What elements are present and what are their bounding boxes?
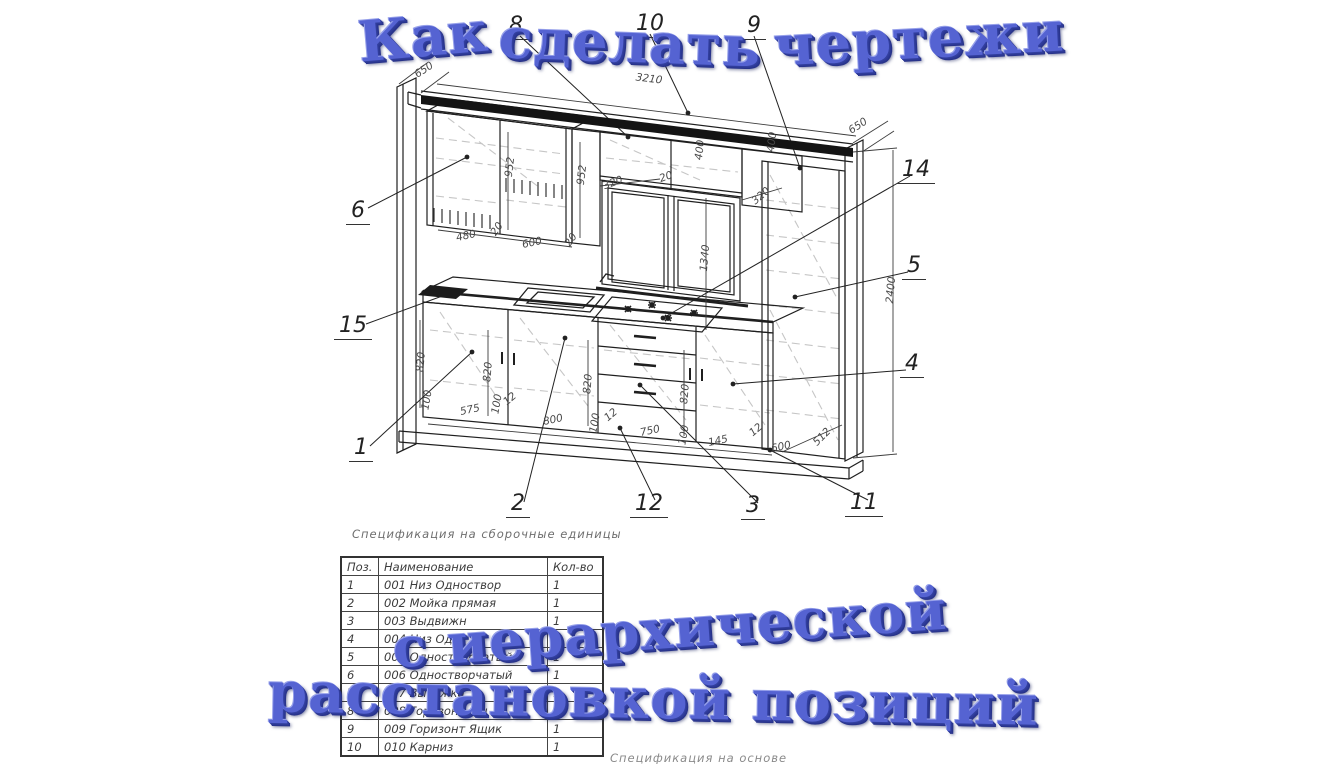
footer-caption: Спецификация на основе	[610, 751, 787, 764]
table-cell: 1	[341, 576, 379, 594]
table-header-row: Поз. Наименование Кол-во	[341, 557, 603, 576]
table-cell: 3	[341, 612, 379, 630]
table-cell: 001 Низ Одноствор	[379, 576, 548, 594]
right-wall-panel	[845, 140, 863, 461]
page-background: 6503210650952952400400320203204802060020…	[0, 0, 1323, 764]
base-cabinets	[423, 302, 773, 449]
spec-table-caption: Спецификация на сборочные единицы	[352, 527, 622, 541]
cornice	[421, 95, 853, 157]
table-cell: 010 Карниз	[379, 738, 548, 757]
left-wall-panel	[397, 78, 416, 453]
title-word: Как	[356, 0, 492, 76]
plinth	[397, 431, 863, 479]
table-cell: 1	[548, 576, 604, 594]
table-row: 1001 Низ Одноствор1	[341, 576, 603, 594]
title-overlay-top: Каксделатьчертежи	[358, 2, 1064, 68]
dimension-lines	[399, 63, 897, 458]
table-cell: 10	[341, 738, 379, 757]
table-cell: 1	[548, 738, 604, 757]
counter-drainer	[418, 285, 468, 299]
dish-rack	[434, 178, 562, 229]
col-header-qty: Кол-во	[548, 557, 604, 576]
tall-cabinet	[762, 161, 845, 459]
title-word: сделать	[497, 5, 762, 80]
col-header-pos: Поз.	[341, 557, 379, 576]
col-header-name: Наименование	[379, 557, 548, 576]
table-cell: 2	[341, 594, 379, 612]
table-row: 10010 Карниз1	[341, 738, 603, 757]
window	[596, 181, 748, 306]
table-cell: 4	[341, 630, 379, 648]
title-overlay-bottom-line2: расстановкой позиций	[267, 659, 1039, 738]
title-word: чертежи	[772, 0, 1066, 80]
